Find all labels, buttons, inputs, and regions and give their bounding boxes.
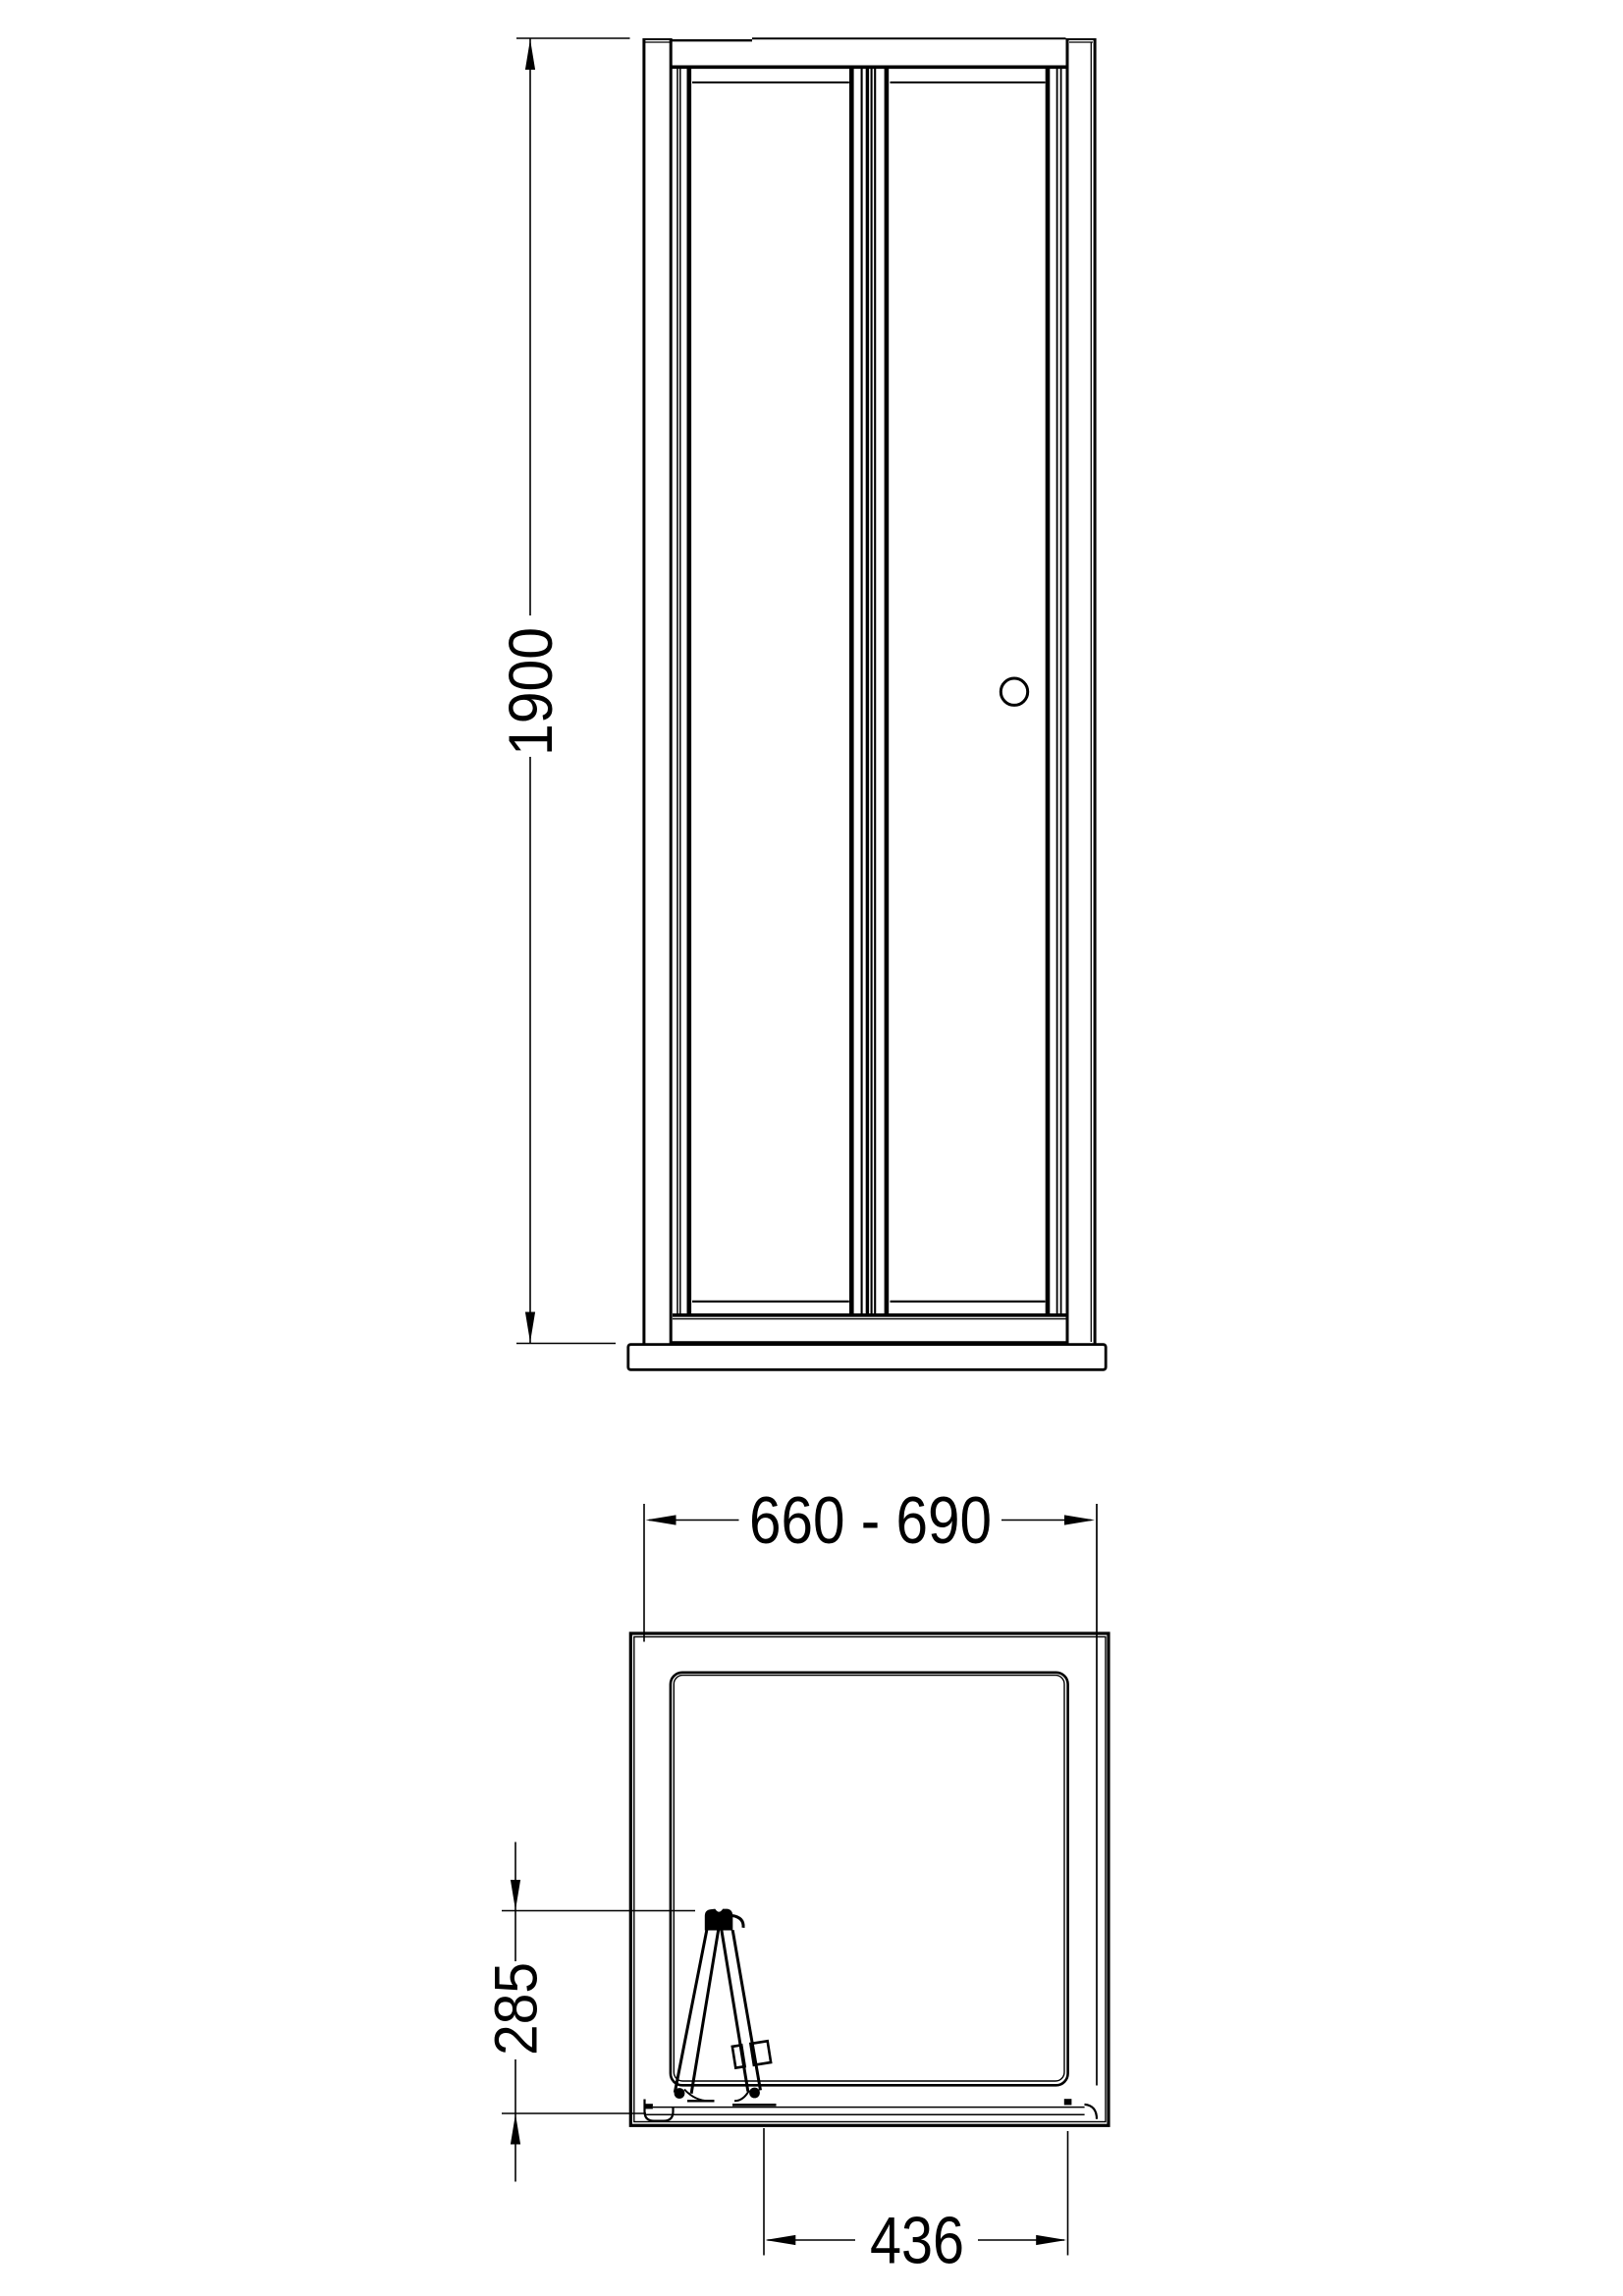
svg-text:660 - 690: 660 - 690 [749,1483,992,1558]
svg-text:436: 436 [870,2204,964,2278]
svg-text:1900: 1900 [497,627,566,756]
svg-text:285: 285 [483,1962,550,2056]
